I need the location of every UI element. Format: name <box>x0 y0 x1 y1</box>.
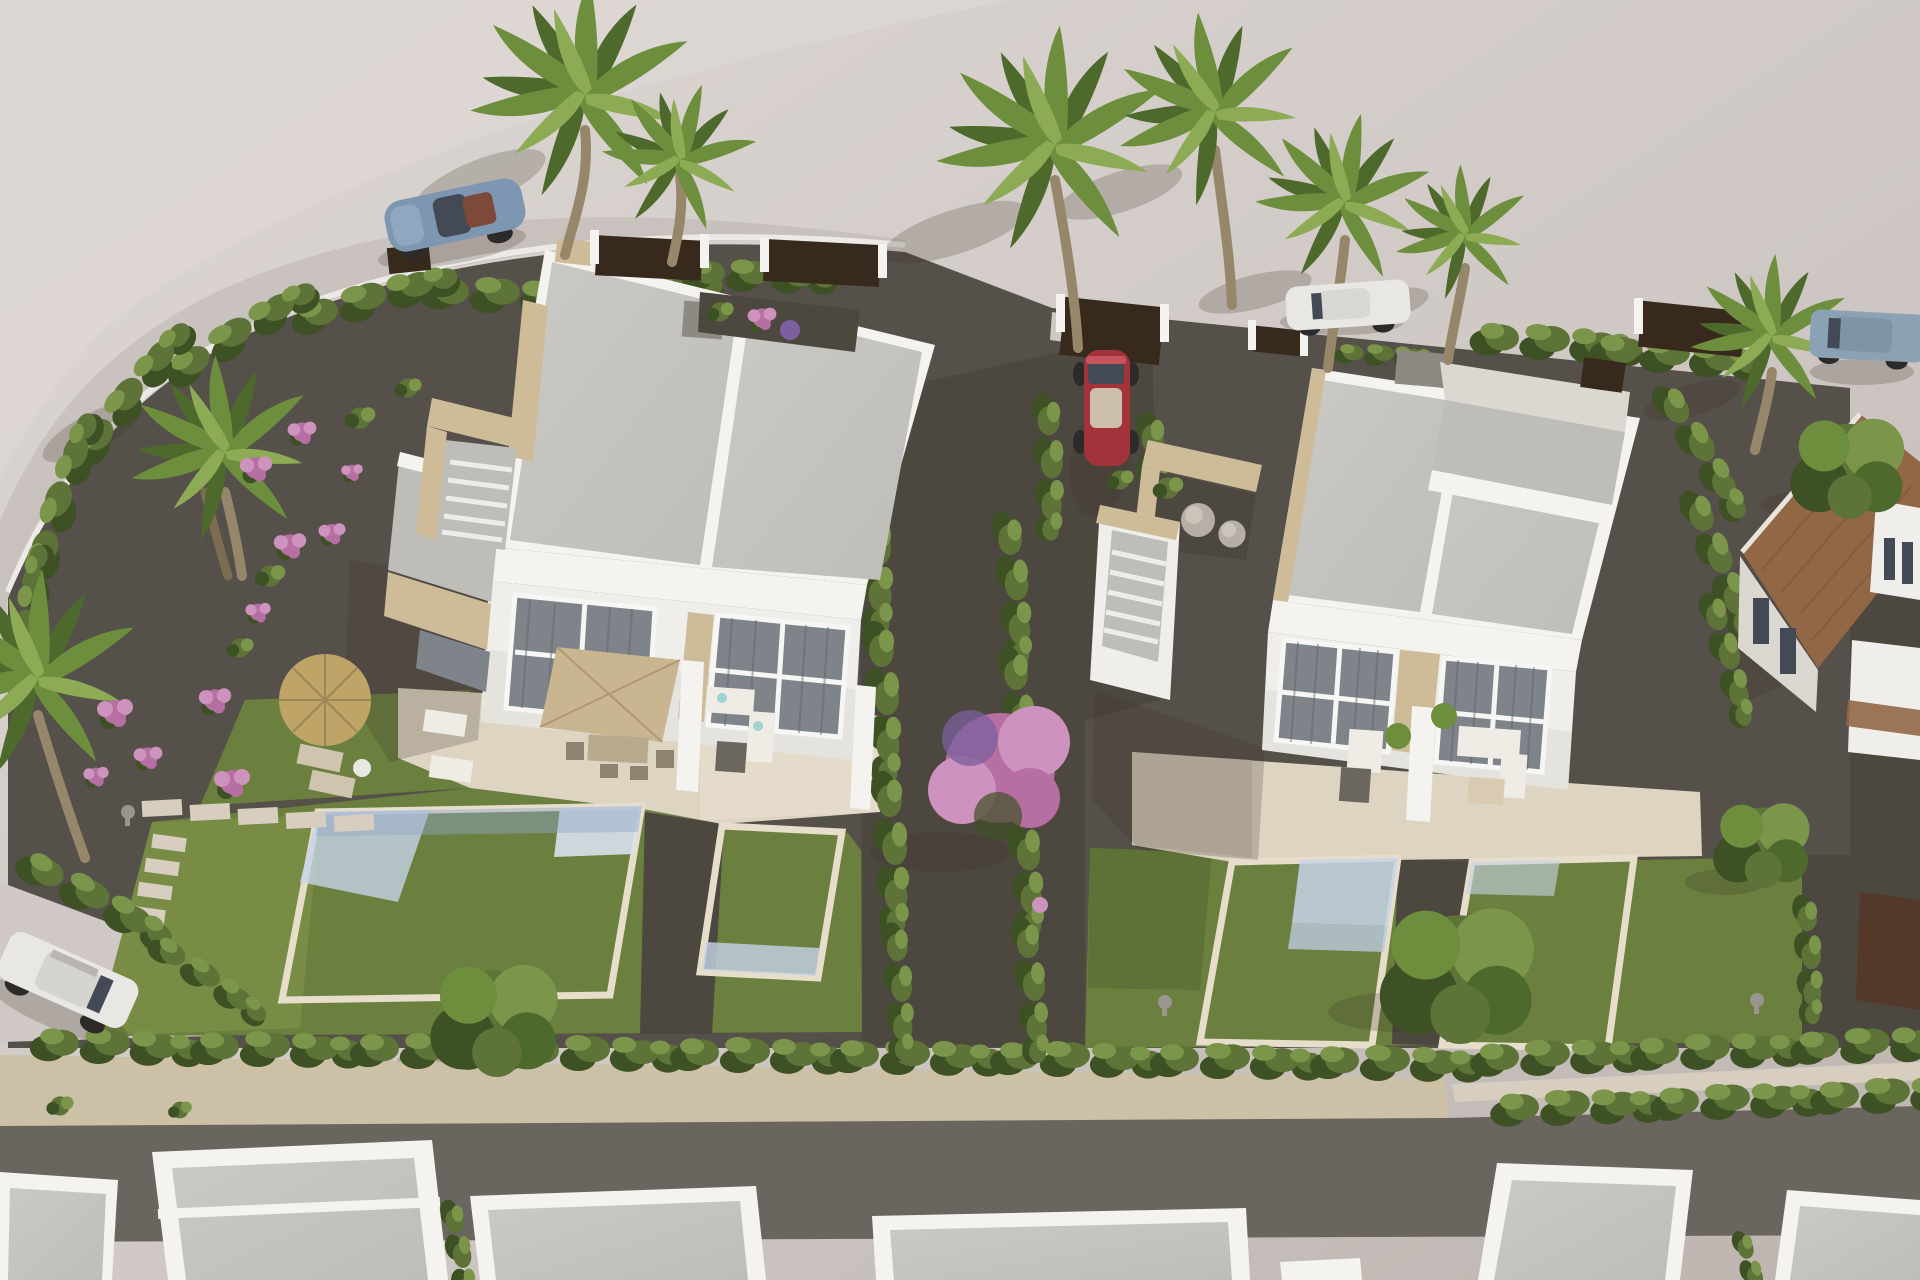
roof <box>1790 1206 1920 1280</box>
garden-tree <box>1713 803 1809 888</box>
pool-platform <box>1292 858 1398 926</box>
garden-tree <box>1380 908 1534 1044</box>
potted-plant <box>1431 703 1457 729</box>
chair <box>656 750 674 768</box>
window <box>1902 542 1913 584</box>
roof <box>8 1188 106 1280</box>
aerial-render <box>0 0 1920 1280</box>
chair <box>566 742 584 760</box>
roof <box>1494 1180 1676 1280</box>
hedge-bloom <box>1018 728 1032 742</box>
pool-steps <box>1466 860 1560 896</box>
chair <box>630 766 648 780</box>
external-stair <box>1090 505 1180 700</box>
side-table <box>353 759 371 777</box>
pergola <box>1856 892 1920 1010</box>
pouf <box>1467 777 1505 805</box>
chair <box>600 764 618 778</box>
roof <box>488 1201 748 1280</box>
bougainvillea-tree <box>928 706 1070 840</box>
potted-plant <box>1385 723 1411 749</box>
window <box>1780 628 1796 674</box>
window <box>1884 538 1895 580</box>
hedge-bloom <box>1032 897 1048 913</box>
roof <box>890 1222 1232 1280</box>
lounger <box>1347 729 1384 773</box>
window-unit-2 <box>708 615 848 737</box>
hedge-bloom <box>1025 813 1039 827</box>
path-between-left-pools <box>640 812 724 1034</box>
render-canvas <box>0 0 1920 1280</box>
garden-tree <box>1790 419 1904 519</box>
neighbour-wall <box>1848 640 1920 760</box>
lawn-shade-patch <box>1088 848 1212 990</box>
roof <box>172 1158 428 1280</box>
garden-tree <box>430 965 557 1077</box>
rooftop-door <box>1580 357 1626 393</box>
external-stair <box>416 398 522 550</box>
coffee-table <box>1339 767 1371 803</box>
roof-access <box>555 238 593 266</box>
pool-steps <box>702 942 820 976</box>
pool-steps <box>1288 923 1388 952</box>
window <box>1753 598 1769 644</box>
coffee-table <box>715 741 747 773</box>
dining-table <box>587 734 648 763</box>
